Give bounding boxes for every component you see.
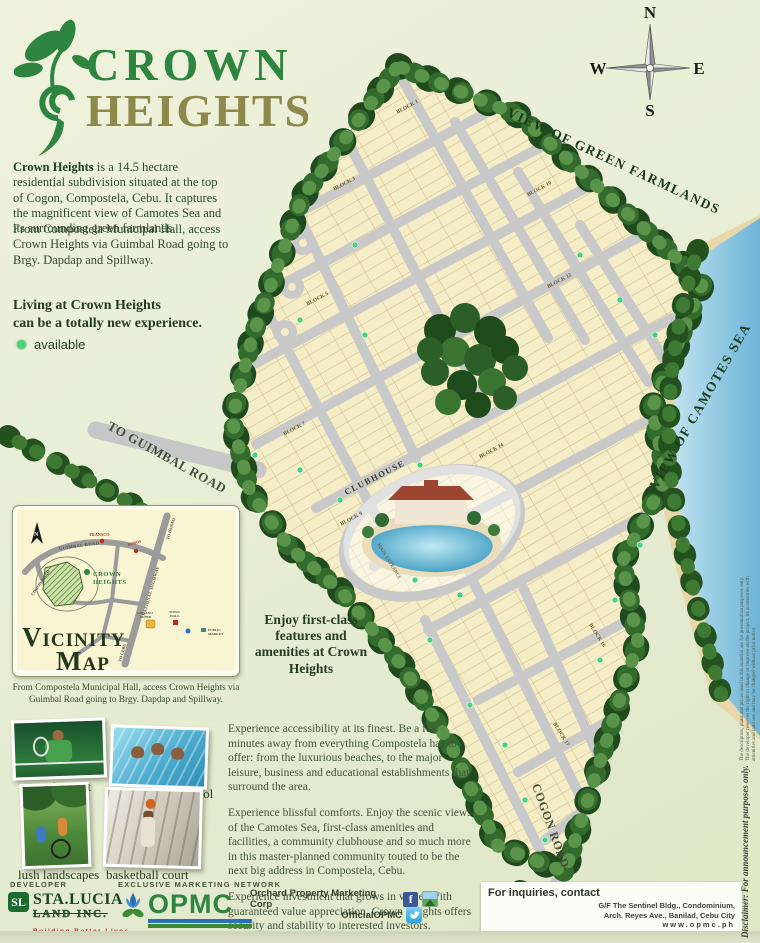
vicinity-crown1: CROWN <box>93 571 121 578</box>
developer-heading: DEVELOPER <box>10 880 67 889</box>
opmc-bar-blue <box>148 919 252 923</box>
tagline-line1: Living at Crown Heights <box>13 297 243 315</box>
vicinity-caption: From Compostela Municipal Hall, access C… <box>8 683 244 706</box>
twitter-row: OfficialOPMC <box>250 907 422 923</box>
address-line1: G/F The Sentinel Bldg., Condominium, <box>598 901 735 911</box>
address-line2: Arch. Reyes Ave., Banilad, Cebu City <box>598 911 735 921</box>
sta-lucia-mark-icon: SL <box>8 892 29 912</box>
photo-icon <box>422 891 438 907</box>
logo-heights: HEIGHTS <box>86 88 312 134</box>
intro-lead: Crown Heights <box>13 160 94 174</box>
compass-n: N <box>644 3 657 22</box>
vicinity-town-hall-marker <box>173 620 178 625</box>
swimming-pool-photo <box>109 724 209 789</box>
vicinity-title-line2: Map <box>56 649 126 673</box>
bottom-band <box>0 931 760 943</box>
poster: VIEW OF GREEN FARMLANDS VIEW OF CAMOTES … <box>0 0 760 943</box>
vicinity-map-title: Vicinity Map <box>22 625 126 674</box>
available-label: available <box>34 337 85 352</box>
sta-lucia-sub: LAND INC. <box>33 908 133 920</box>
amenities-heading: Enjoy first-class features and amenities… <box>252 612 370 677</box>
vicinity-robos-marker <box>134 549 138 553</box>
disclaimer: Disclaimer: For announcement purposes on… <box>740 574 758 938</box>
logo-title: CROWN HEIGHTS <box>86 42 312 134</box>
tagline-line2: can be a totally new experience. <box>13 315 243 333</box>
sta-lucia-name: STA.LUCIA <box>33 892 133 908</box>
vicinity-public-market-label2: MARKET <box>208 632 224 636</box>
disclaimer-title: Disclaimer: For announcement purposes on… <box>740 765 750 938</box>
leaf-swirl-icon <box>14 18 96 158</box>
vicinity-transco-label: TRANSCO <box>89 532 110 537</box>
facebook-icon: f <box>403 892 418 907</box>
twitter-label: OfficialOPMC <box>341 910 402 921</box>
body-paragraph-2: Experience blissful comforts. Enjoy the … <box>228 806 475 879</box>
body-paragraph-1: Experience accessibility at its finest. … <box>228 722 475 795</box>
vicinity-supermarket-label2: SUPER <box>140 615 152 619</box>
vicinity-north-label: N <box>34 532 39 538</box>
vicinity-crown2: HEIGHTS <box>93 579 126 586</box>
intro-paragraph-2: From Compostela Municipal Hall, access C… <box>13 222 231 268</box>
disclaimer-body: The descriptors, plans and prices used i… <box>740 574 758 761</box>
vicinity-blue-marker <box>186 629 191 634</box>
vicinity-transco-marker <box>100 539 104 543</box>
legend: available <box>17 337 85 352</box>
compass-rose: N S W E <box>590 3 705 120</box>
compass-w: W <box>590 59 607 78</box>
lush-landscapes-photo <box>20 782 92 869</box>
inquiries-box: For inquiries, contact G/F The Sentinel … <box>481 882 742 934</box>
tulip-icon <box>122 892 144 920</box>
inquiries-address: G/F The Sentinel Bldg., Condominium, Arc… <box>598 901 735 930</box>
opmc-name: OPMC <box>148 892 252 916</box>
logo-crown: CROWN <box>86 42 312 88</box>
compass-e: E <box>693 59 704 78</box>
tagline: Living at Crown Heights can be a totally… <box>13 297 243 332</box>
website: www.opmc.ph <box>598 920 735 930</box>
opmc-logo: OPMC <box>122 892 252 928</box>
inquiries-heading: For inquiries, contact <box>488 887 735 899</box>
vicinity-leaf-icon <box>84 569 90 575</box>
vicinity-town-hall-label2: HALL <box>170 614 180 618</box>
vicinity-public-market-marker <box>201 628 206 632</box>
basketball-court-photo <box>103 787 203 870</box>
opmc-bar-green <box>148 924 252 928</box>
tennis-court-photo <box>11 717 107 780</box>
compass-s: S <box>645 101 654 120</box>
twitter-icon <box>406 907 422 923</box>
vicinity-supermarket-marker <box>146 620 155 628</box>
available-dot-icon <box>17 340 26 349</box>
